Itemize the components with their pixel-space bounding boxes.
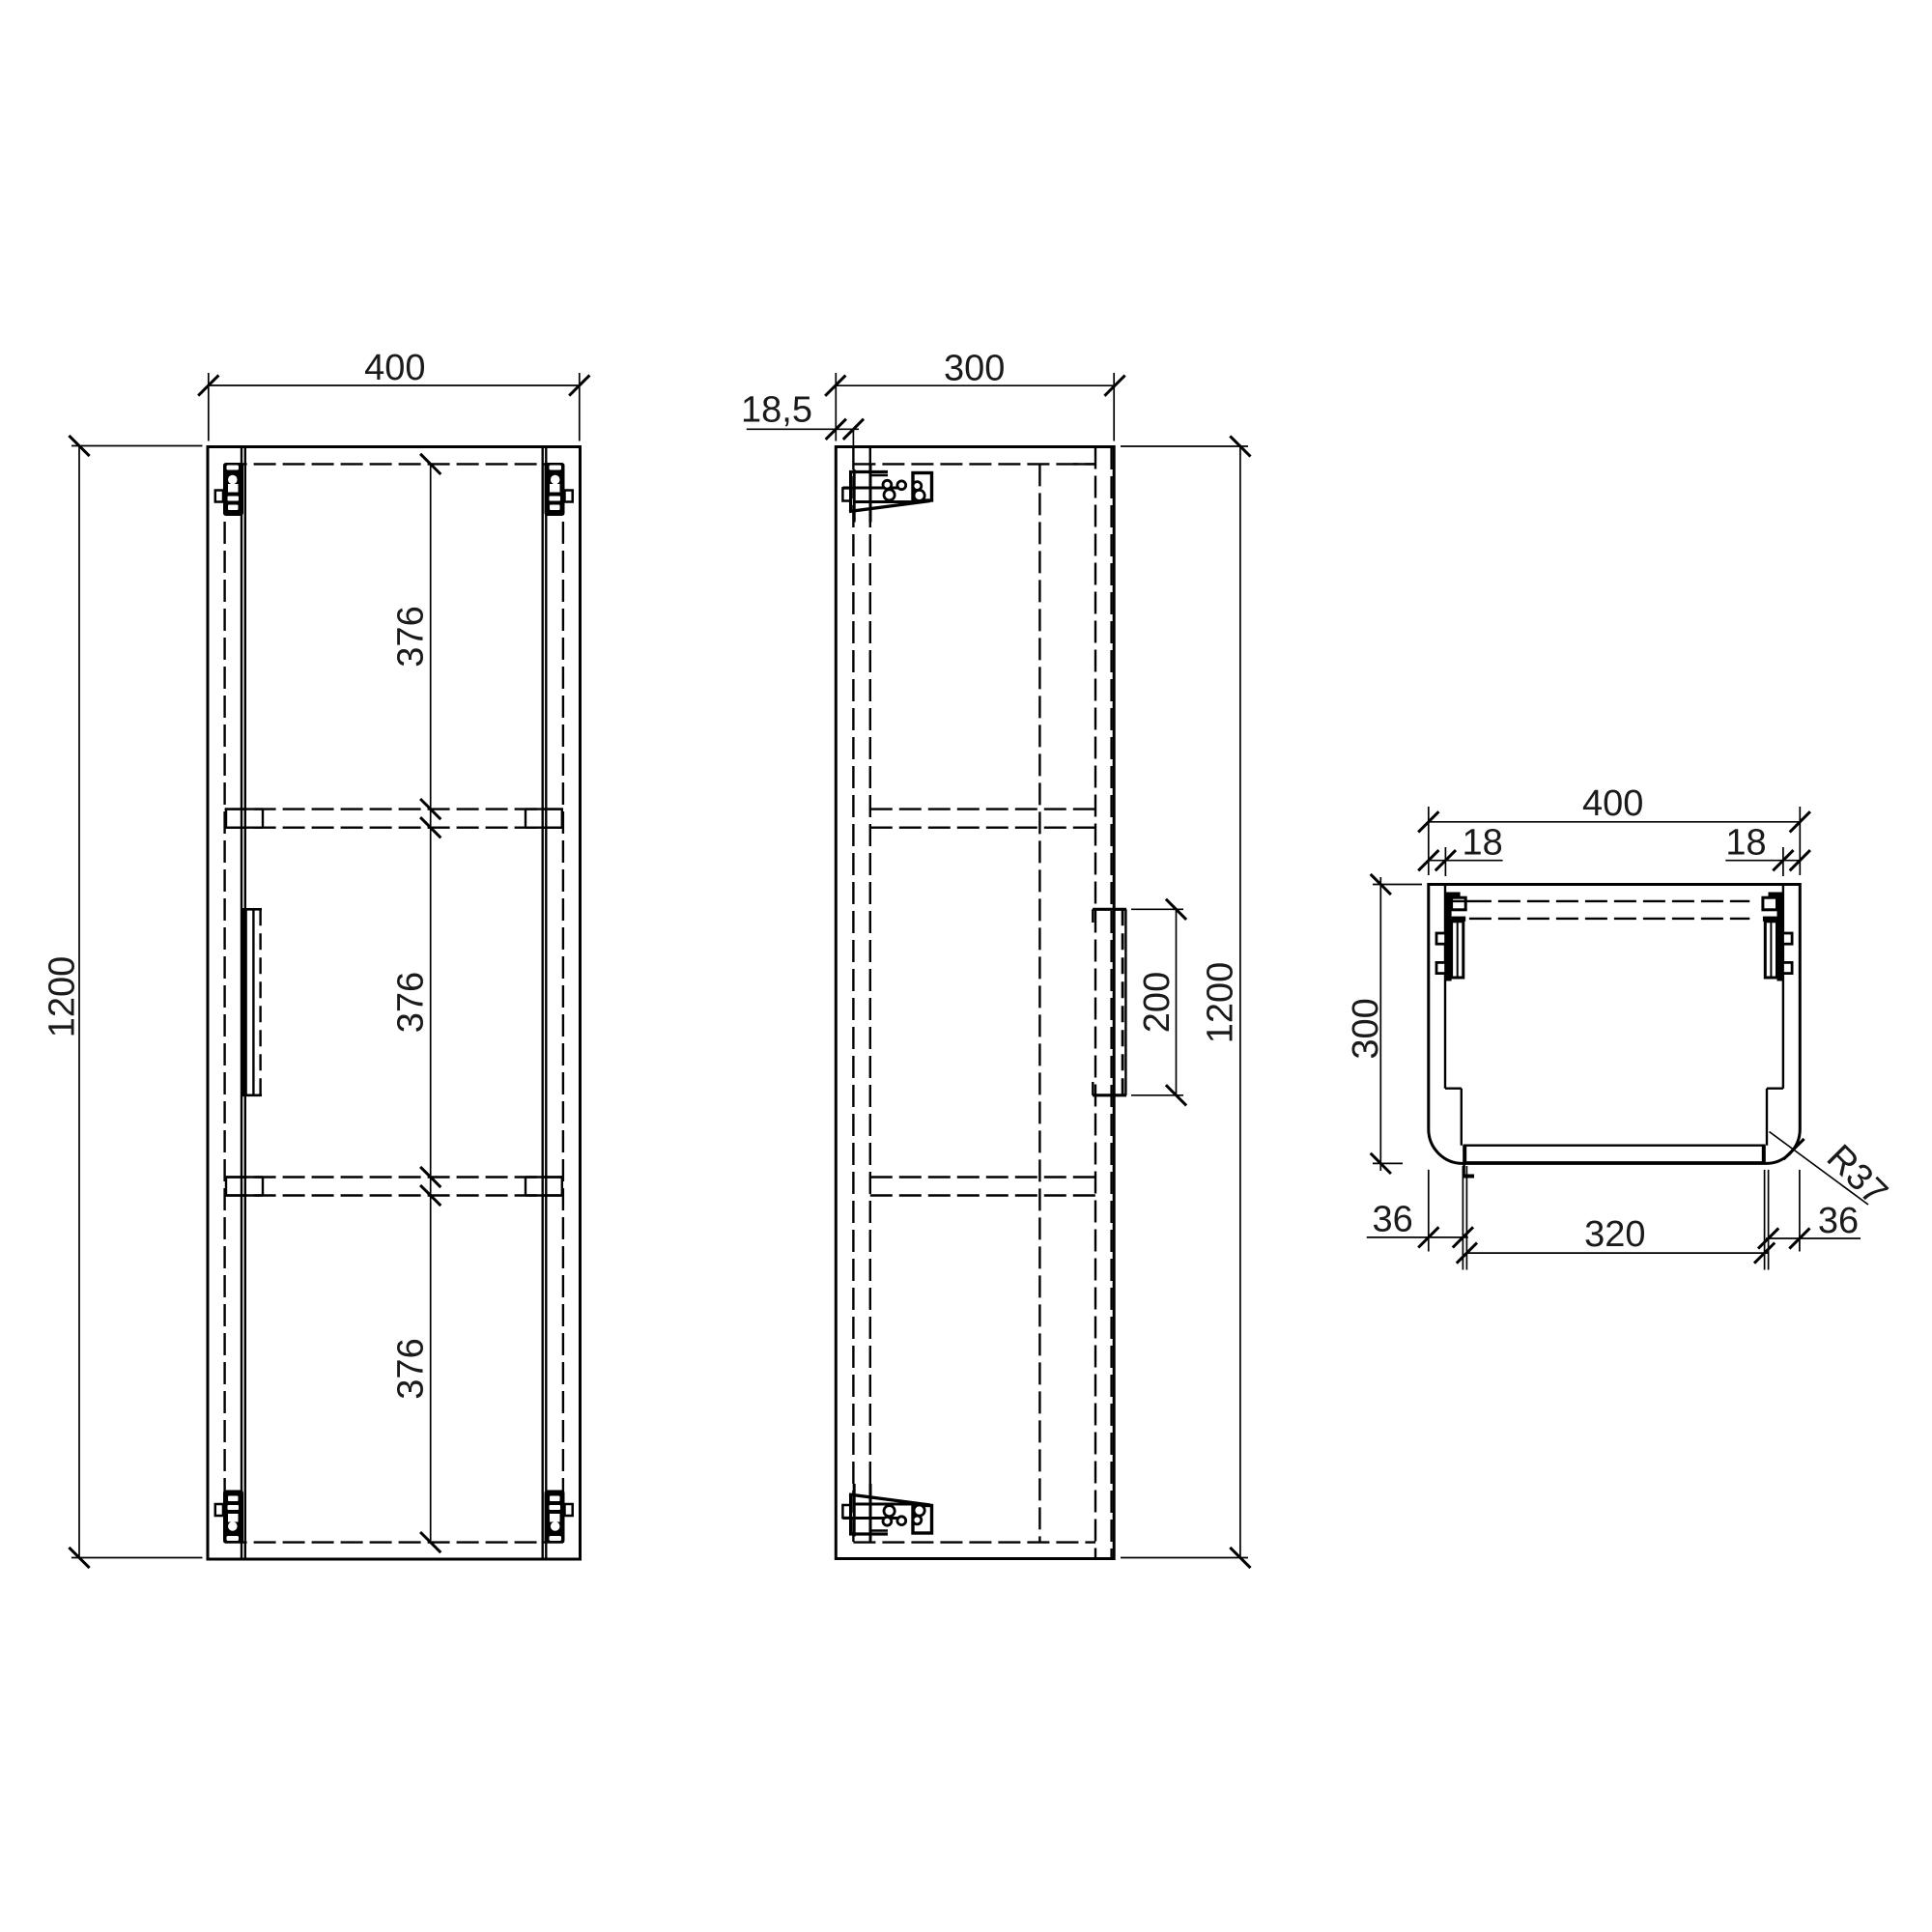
svg-text:400: 400 bbox=[1582, 783, 1643, 824]
svg-text:1200: 1200 bbox=[1201, 962, 1241, 1044]
svg-text:300: 300 bbox=[944, 349, 1005, 389]
svg-text:18: 18 bbox=[1462, 823, 1502, 864]
svg-text:1200: 1200 bbox=[43, 956, 83, 1038]
svg-text:36: 36 bbox=[1818, 1201, 1859, 1241]
svg-text:320: 320 bbox=[1584, 1214, 1645, 1255]
svg-text:300: 300 bbox=[1346, 998, 1386, 1059]
svg-text:18: 18 bbox=[1725, 823, 1766, 864]
svg-text:400: 400 bbox=[364, 348, 425, 388]
svg-text:18,5: 18,5 bbox=[741, 390, 812, 431]
svg-text:36: 36 bbox=[1373, 1200, 1413, 1240]
svg-text:376: 376 bbox=[391, 1338, 432, 1399]
svg-text:376: 376 bbox=[391, 606, 432, 667]
svg-text:200: 200 bbox=[1137, 972, 1178, 1033]
svg-text:376: 376 bbox=[391, 972, 432, 1033]
